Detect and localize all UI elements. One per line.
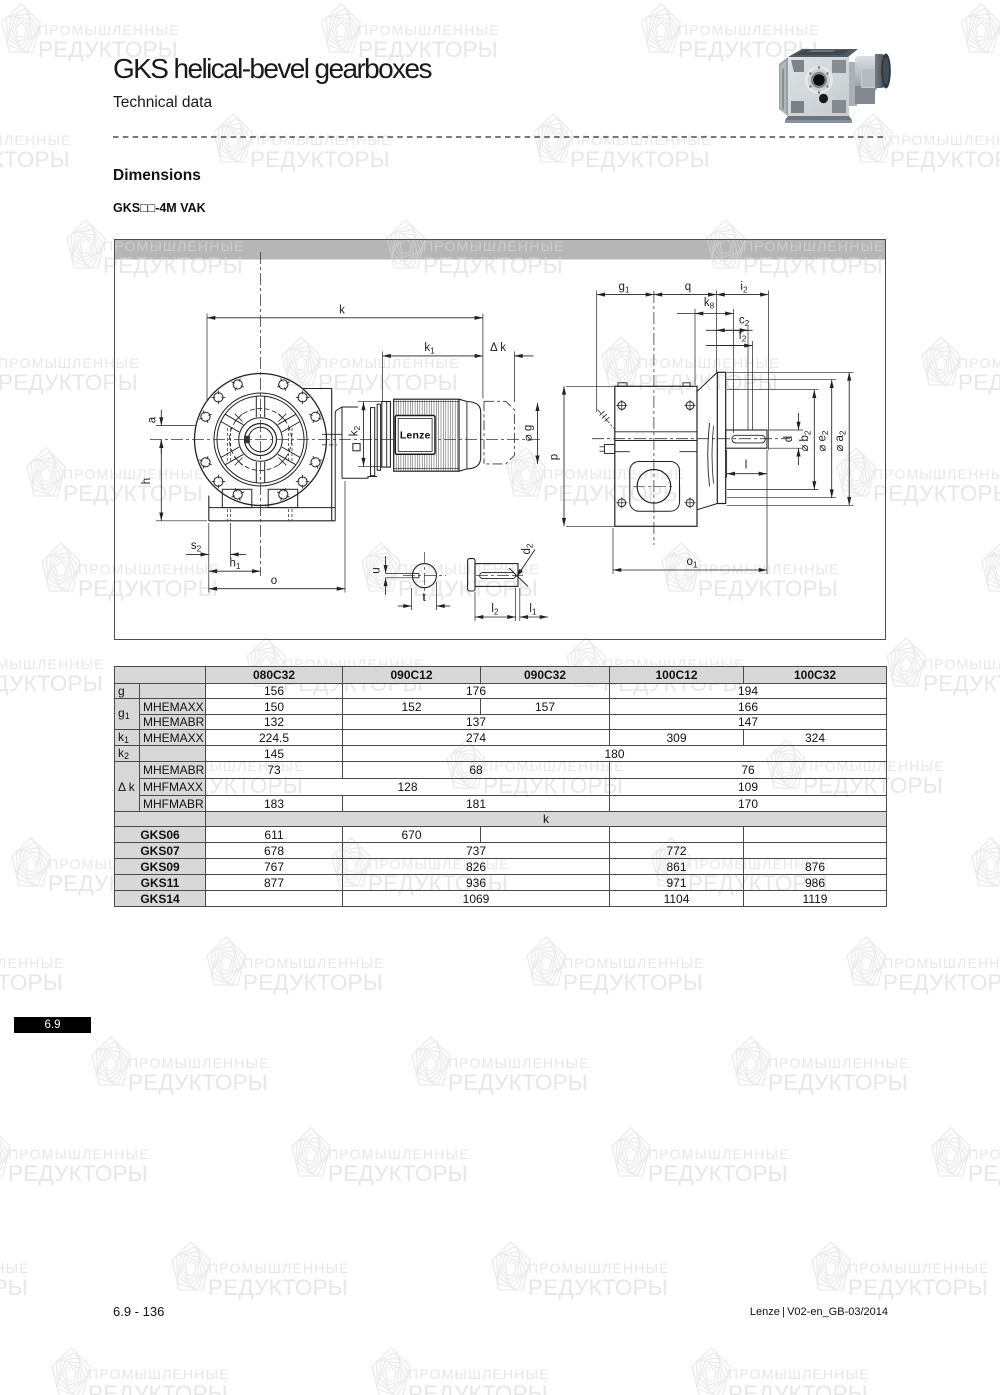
svg-text:q: q [685, 281, 691, 293]
svg-text:a: a [147, 416, 159, 423]
svg-text:p: p [549, 454, 561, 460]
svg-text:l1: l1 [529, 603, 537, 617]
svg-text:l: l [745, 459, 748, 471]
svg-text:i2: i2 [740, 281, 748, 295]
svg-text:h1: h1 [229, 557, 240, 571]
svg-text:⌀ g: ⌀ g [523, 425, 535, 442]
svg-text:k1: k1 [424, 342, 435, 356]
svg-text:g1: g1 [618, 281, 629, 295]
svg-text:s2: s2 [191, 540, 202, 554]
svg-text:k2: k2 [349, 425, 363, 436]
svg-text:h: h [141, 478, 153, 484]
svg-text:o: o [271, 575, 277, 587]
svg-text:o1: o1 [686, 556, 697, 570]
svg-text:⌀ e2: ⌀ e2 [817, 430, 831, 452]
svg-text:⌀ a2: ⌀ a2 [834, 430, 848, 452]
svg-text:f2: f2 [739, 330, 747, 344]
svg-text:Lenze: Lenze [400, 430, 431, 442]
svg-text:k: k [339, 305, 345, 317]
svg-text:l2: l2 [491, 603, 499, 617]
svg-text:⌀ b2: ⌀ b2 [799, 430, 813, 452]
svg-text:k8: k8 [704, 297, 715, 311]
svg-text:d2: d2 [521, 543, 535, 554]
svg-text:u: u [371, 567, 383, 573]
svg-text:Δ k: Δ k [490, 342, 506, 354]
svg-text:d: d [783, 436, 795, 442]
svg-text:t: t [422, 592, 426, 604]
